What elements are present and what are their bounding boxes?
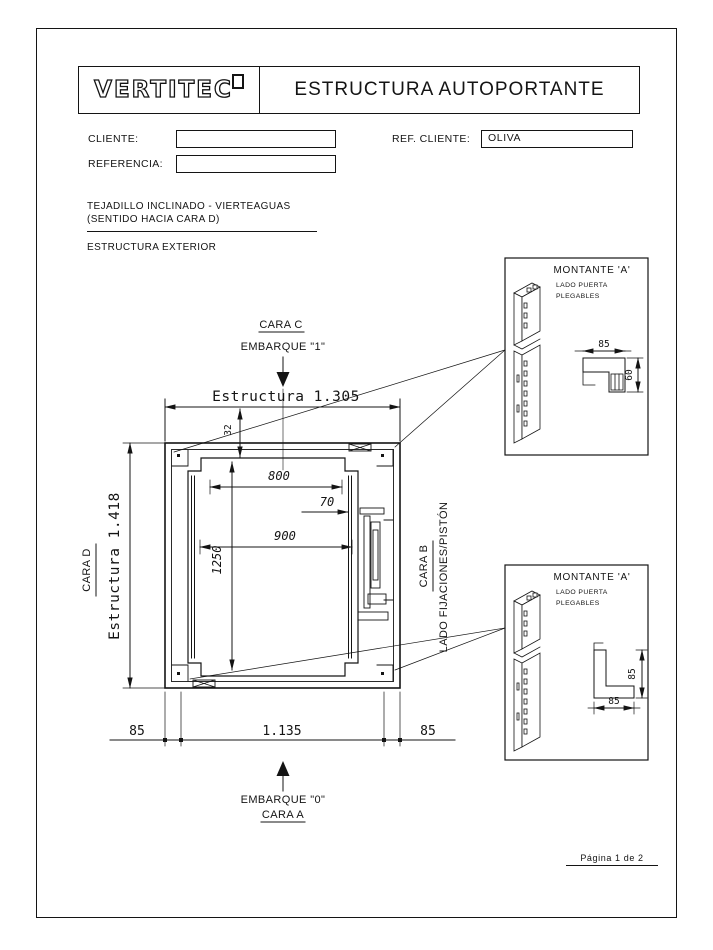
detail-bottom-dim-height: 85 [627, 668, 638, 679]
dim-estructura-width: Estructura 1.305 [212, 389, 360, 405]
dim-post-left: 85 [129, 724, 145, 739]
dim-roof-offset: 32 [223, 424, 234, 435]
dim-cabin-width: 900 [274, 529, 296, 543]
detail-top-dim-height: 60 [624, 369, 635, 381]
cara-b-label: CARA B [418, 545, 430, 588]
detail-top-title: MONTANTE 'A' [553, 265, 630, 276]
structure-plan-drawing: CARA C EMBARQUE "1" Estructura 1.305 32 … [0, 0, 713, 950]
plan-linework [96, 258, 648, 822]
embarque-bottom-label: EMBARQUE "0" [241, 794, 326, 806]
detail-bottom-subtitle2: PLEGABLES [556, 600, 600, 607]
piston-mechanism [358, 508, 393, 620]
montante-isometric-icon [514, 283, 540, 443]
leader-line [190, 628, 505, 679]
montante-isometric-icon [514, 591, 540, 751]
detail-bottom-title: MONTANTE 'A' [553, 572, 630, 583]
cara-d-label: CARA D [81, 548, 93, 591]
dim-door-clear: 800 [268, 469, 290, 483]
dim-clear-width: 1.135 [262, 724, 301, 739]
cara-c-label: CARA C [259, 319, 302, 331]
detail-top-subtitle2: PLEGABLES [556, 293, 600, 300]
dim-piston-offset: 70 [320, 495, 334, 509]
detail-top-dim-width: 85 [598, 339, 609, 350]
leader-line [395, 350, 505, 447]
page-number: Página 1 de 2 [566, 853, 658, 866]
detail-top-subtitle1: LADO PUERTA [556, 282, 608, 289]
dim-cabin-depth: 1250 [210, 546, 224, 575]
detail-bottom-dim-width: 85 [608, 696, 619, 707]
fixing-block-top [349, 444, 371, 451]
arrow-down-icon [277, 372, 290, 387]
dim-post-right: 85 [420, 724, 436, 739]
embarque-top-label: EMBARQUE "1" [241, 341, 326, 353]
arrow-up-icon [277, 761, 290, 776]
drawing-sheet: VERTITEC ESTRUCTURA AUTOPORTANTE CLIENTE… [0, 0, 713, 950]
cara-a-label: CARA A [262, 809, 304, 821]
lado-fijaciones-label: LADO FIJACIONES/PISTÓN [437, 502, 450, 653]
detail-bottom-subtitle1: LADO PUERTA [556, 589, 608, 596]
dim-estructura-depth: Estructura 1.418 [107, 492, 123, 640]
leader-line [395, 628, 505, 670]
fixing-block-bottom [193, 680, 215, 687]
